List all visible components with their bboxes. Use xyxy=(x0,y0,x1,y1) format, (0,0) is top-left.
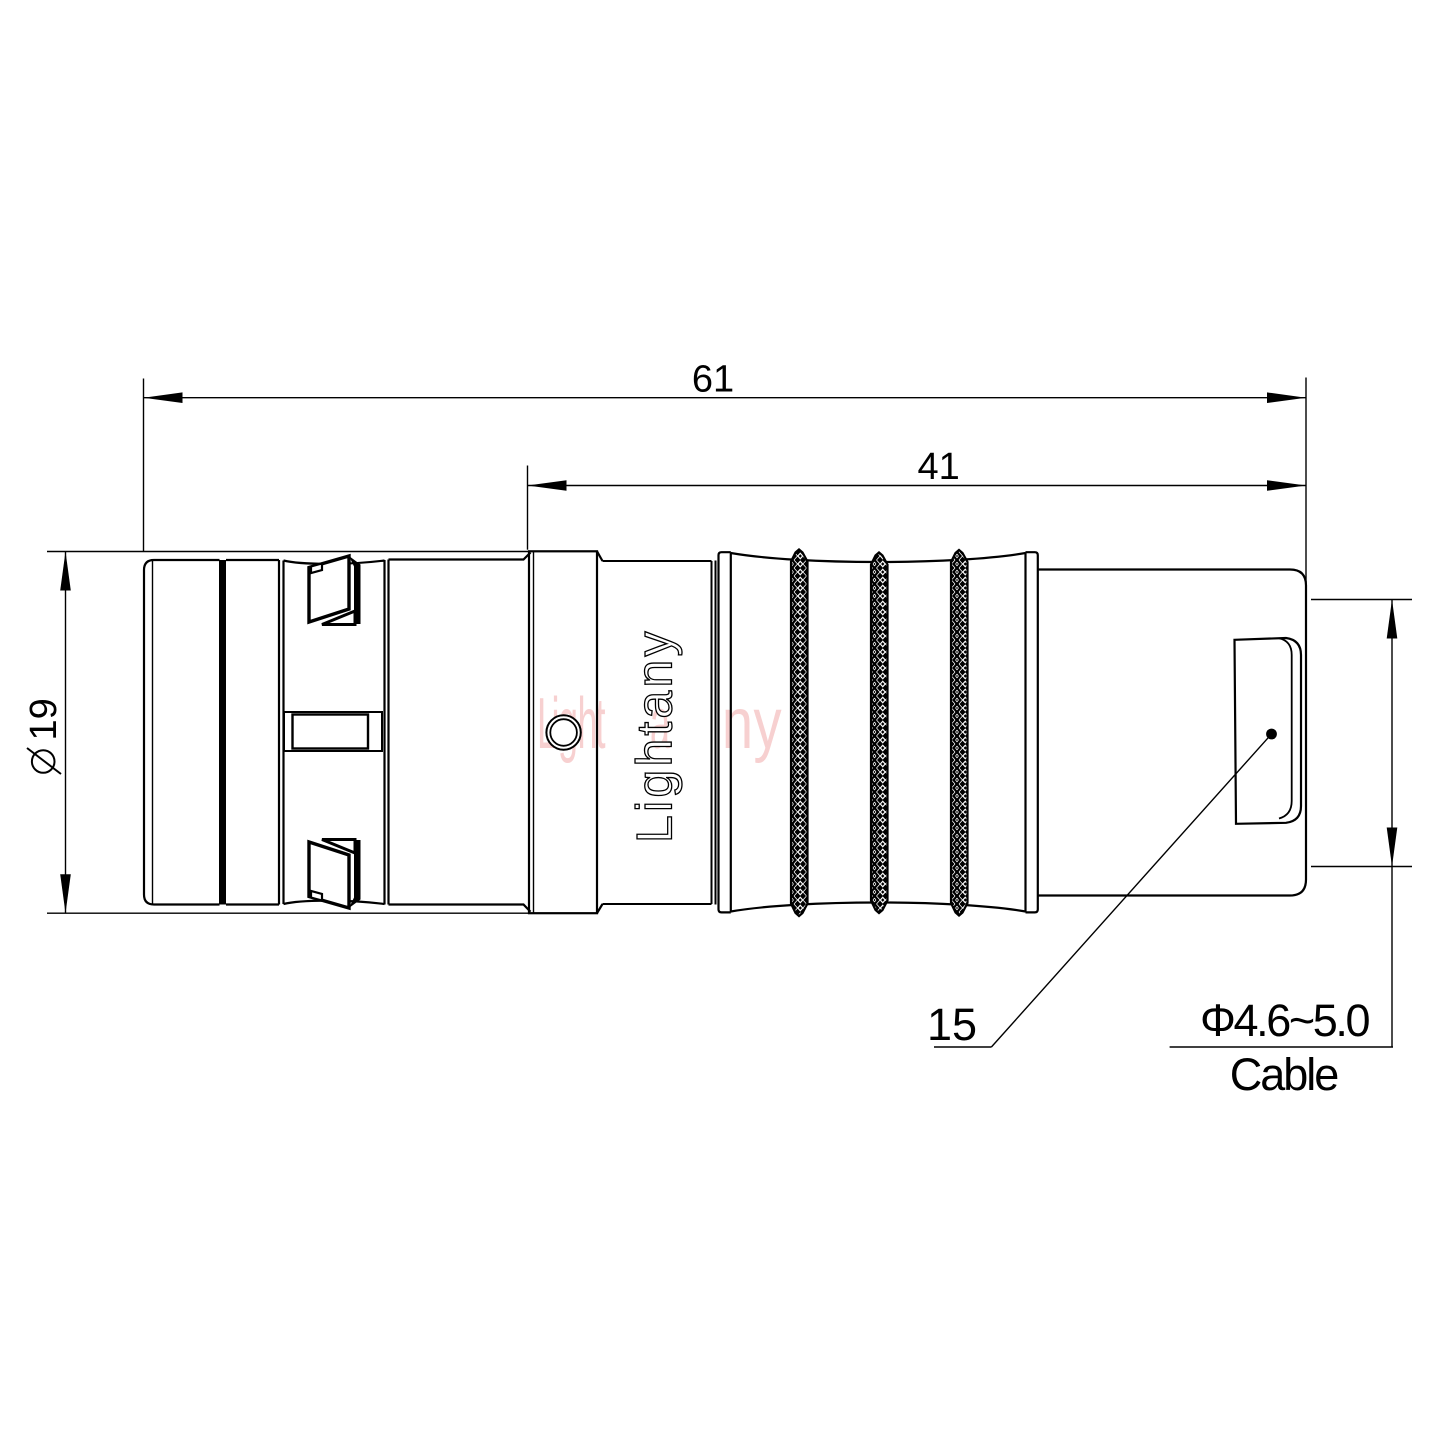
svg-text:15: 15 xyxy=(927,999,977,1050)
svg-text:Lightany: Lightany xyxy=(627,628,683,843)
svg-text:61: 61 xyxy=(692,358,734,400)
svg-text:Cable: Cable xyxy=(1230,1049,1339,1100)
svg-text:41: 41 xyxy=(918,446,960,488)
svg-text:Φ4.6~5.0: Φ4.6~5.0 xyxy=(1200,995,1369,1046)
svg-text:19: 19 xyxy=(23,698,65,740)
